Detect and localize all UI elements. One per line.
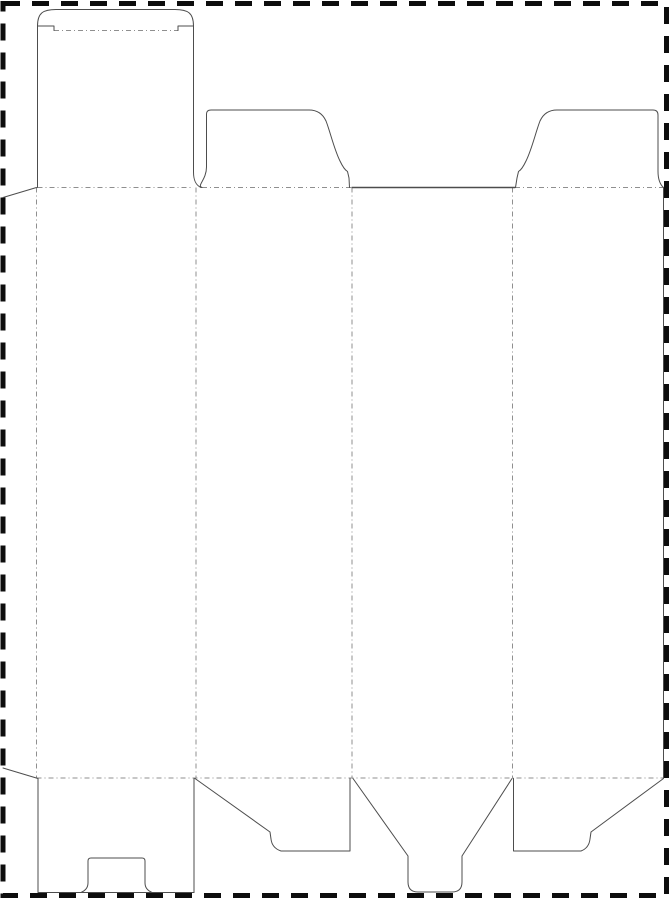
glue-flap-top-edge-cut-line (3, 188, 37, 198)
bottom-dust-flap-left-cut-line (195, 779, 350, 852)
page-border-group (3, 4, 667, 896)
cut-lines-group (3, 10, 664, 893)
right-dust-flap-outline-cut-line (516, 110, 664, 188)
bottom-lock-tab-flap-cut-line (353, 779, 512, 893)
page-border (3, 4, 667, 896)
bottom-flap-1-lock-slot-cut-line (81, 858, 152, 893)
glue-flap-bottom-edge-cut-line (3, 768, 38, 779)
tuck-flap-right-edge-cut-line (194, 26, 202, 188)
tuck-flap-left-shoulder-cut-line (38, 26, 55, 31)
dieline-page (0, 0, 671, 900)
tuck-flap-top-arc-cut-line (38, 10, 194, 27)
tuck-flap-right-shoulder-cut-line (178, 26, 194, 31)
bottom-dust-flap-right-cut-line (514, 779, 664, 852)
dieline-drawing (0, 0, 671, 900)
left-dust-flap-outline-cut-line (200, 110, 349, 188)
fold-lines-group (37, 31, 664, 779)
